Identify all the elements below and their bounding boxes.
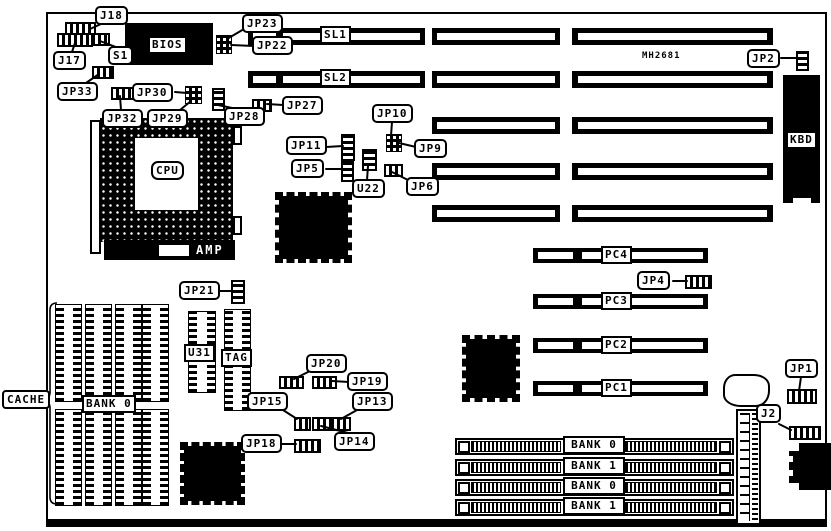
jp4-header	[685, 275, 712, 289]
bios-chip-label: BIOS	[148, 36, 187, 54]
isa-slot-5-mid	[432, 205, 560, 222]
callout-j17: J17	[53, 51, 86, 70]
isa-slot-3-right	[572, 117, 773, 134]
simm-bank-label: BANK 0	[563, 477, 625, 495]
jp22-jp23-header	[216, 35, 232, 54]
callout-jp6: JP6	[406, 177, 439, 196]
keyboard-din-connector	[799, 443, 831, 490]
jp5-header	[341, 161, 354, 182]
jp18-header	[294, 439, 321, 453]
callout-jp14: JP14	[334, 432, 375, 451]
slot-label-sl1: SL1	[320, 26, 351, 44]
cache-dip-socket	[55, 304, 82, 402]
callout-jp4: JP4	[637, 271, 670, 290]
callout-jp32: JP32	[102, 109, 143, 128]
callout-s1: S1	[108, 46, 133, 65]
slot-label-pc2: PC2	[601, 336, 632, 354]
jp30-jp29-header	[185, 86, 202, 104]
callout-jp19: JP19	[347, 372, 388, 391]
socket-tab-top	[233, 126, 242, 145]
callout-j2: J2	[756, 404, 781, 423]
jp1-header	[787, 389, 817, 404]
cache-dip-socket	[85, 304, 112, 402]
callout-u22: U22	[352, 179, 385, 198]
cache-dip-socket	[85, 409, 112, 506]
cache-dip-socket	[142, 409, 169, 506]
cpu-label: CPU	[151, 161, 184, 180]
jp21-header	[231, 280, 245, 304]
isa-slot-4-mid	[432, 163, 560, 180]
isa-slot-sl1-mid	[432, 28, 560, 45]
u31-label: U31	[184, 344, 215, 362]
simm-bank-label: BANK 0	[563, 436, 625, 454]
power-connector	[736, 409, 761, 525]
slot-label-pc3: PC3	[601, 292, 632, 310]
callout-jp18: JP18	[241, 434, 282, 453]
s1-switch	[93, 33, 110, 46]
cache-dip-socket	[115, 409, 142, 506]
motherboard-diagram: BIOS J18 J17 S1 JP33 JP30 JP32 JP29 JP28…	[0, 0, 831, 531]
j17-header	[57, 33, 93, 47]
jp11-header	[341, 134, 355, 161]
simm-bank-label: BANK 1	[563, 497, 625, 515]
isa-slot-sl1-right	[572, 28, 773, 45]
din-notch-bottom	[789, 470, 793, 476]
callout-jp21: JP21	[179, 281, 220, 300]
amp-socket-bar: AMP	[104, 240, 235, 260]
cache-dip-socket	[55, 409, 82, 506]
jp33-header	[92, 66, 114, 79]
callout-jp11: JP11	[286, 136, 327, 155]
callout-jp22: JP22	[252, 36, 293, 55]
jp13-header	[332, 417, 351, 431]
jp28-header	[212, 88, 225, 111]
callout-jp10: JP10	[372, 104, 413, 123]
kbd-chip-label: KBD	[786, 131, 817, 149]
isa-slot-sl2-right	[572, 71, 773, 88]
din-notch-top	[789, 456, 793, 462]
callout-jp2: JP2	[747, 49, 780, 68]
amp-label: AMP	[196, 243, 224, 257]
qfp-chip-mid	[462, 335, 520, 402]
kbd-chip-notch	[793, 198, 811, 203]
callout-jp15: JP15	[247, 392, 288, 411]
callout-jp30: JP30	[132, 83, 173, 102]
callout-jp20: JP20	[306, 354, 347, 373]
cache-dip-socket	[115, 304, 142, 402]
isa-slot-4-right	[572, 163, 773, 180]
callout-jp23: JP23	[242, 14, 283, 33]
slot-label-sl2: SL2	[320, 69, 351, 87]
callout-jp9: JP9	[414, 139, 447, 158]
jp2-header	[796, 51, 809, 71]
amp-bar-window	[159, 245, 189, 256]
cache-bank-label: BANK 0	[82, 395, 136, 413]
callout-jp27: JP27	[282, 96, 323, 115]
slot-label-pc4: PC4	[601, 246, 632, 264]
callout-jp33: JP33	[57, 82, 98, 101]
u22-header	[362, 149, 377, 171]
qfp-chip-bottom	[180, 442, 245, 505]
jp19-header	[312, 376, 337, 389]
cache-dip-socket	[142, 304, 169, 402]
chip-part-number: MH2681	[642, 51, 681, 61]
socket-lever	[90, 120, 101, 254]
jp20-header	[279, 376, 304, 389]
isa-slot-sl2-mid	[432, 71, 560, 88]
jp10-jp9-header	[386, 134, 402, 152]
isa-slot-3-mid	[432, 117, 560, 134]
jp14-header	[312, 417, 332, 431]
slot-label-pc1: PC1	[601, 379, 632, 397]
socket-tab-bottom	[233, 216, 242, 235]
callout-jp13: JP13	[352, 392, 393, 411]
callout-cache: CACHE	[2, 390, 50, 409]
callout-jp1: JP1	[785, 359, 818, 378]
jp6-header	[384, 164, 403, 177]
isa-slot-5-right	[572, 205, 773, 222]
callout-j18: J18	[95, 6, 128, 25]
jp15-header	[294, 417, 311, 431]
j2-header	[789, 426, 821, 440]
crystal-outline	[723, 374, 770, 407]
tag-label: TAG	[221, 349, 252, 367]
callout-jp28: JP28	[224, 107, 265, 126]
qfp-chip-top	[275, 192, 352, 263]
callout-jp5: JP5	[291, 159, 324, 178]
simm-bank-label: BANK 1	[563, 457, 625, 475]
callout-jp29: JP29	[147, 109, 188, 128]
